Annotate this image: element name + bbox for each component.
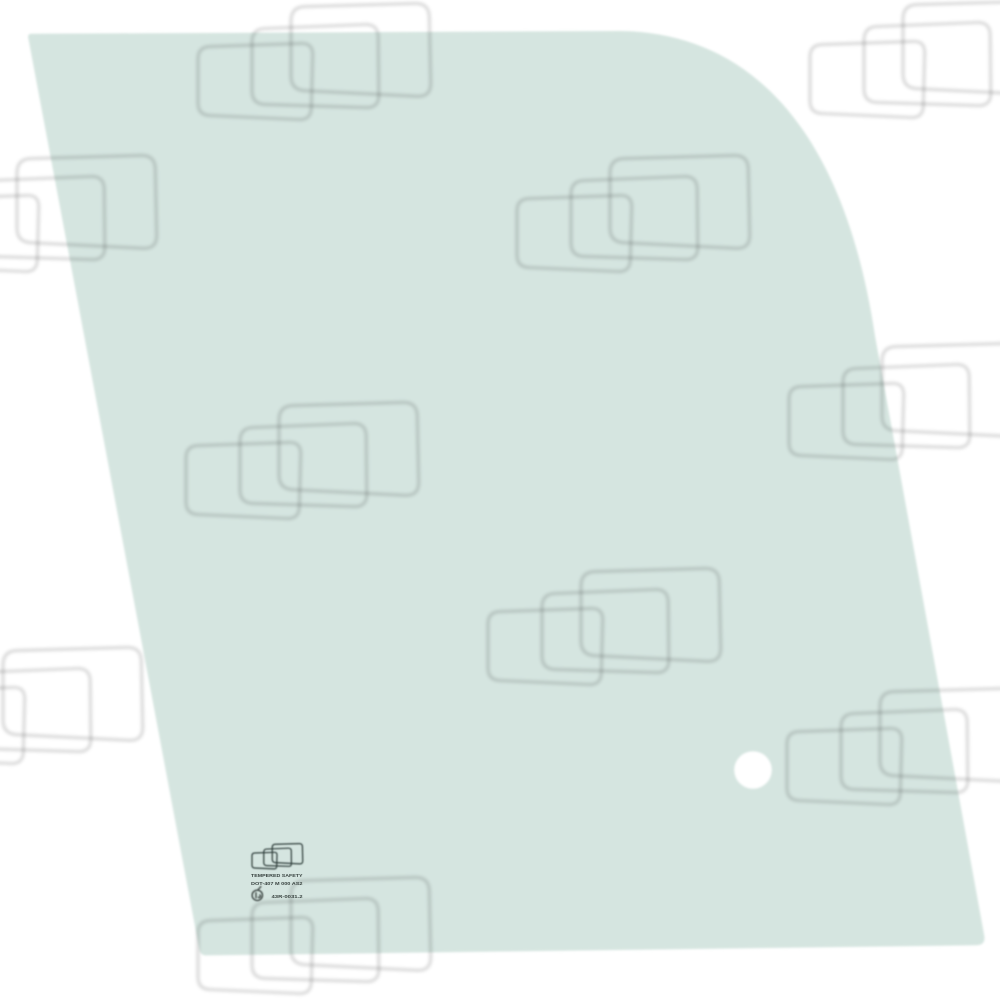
- svg-text:TEMPERED SAFETY: TEMPERED SAFETY: [251, 873, 303, 879]
- svg-text:DOT-407 M 000 AS2: DOT-407 M 000 AS2: [251, 881, 303, 887]
- svg-text:43R-0031.2: 43R-0031.2: [272, 894, 303, 900]
